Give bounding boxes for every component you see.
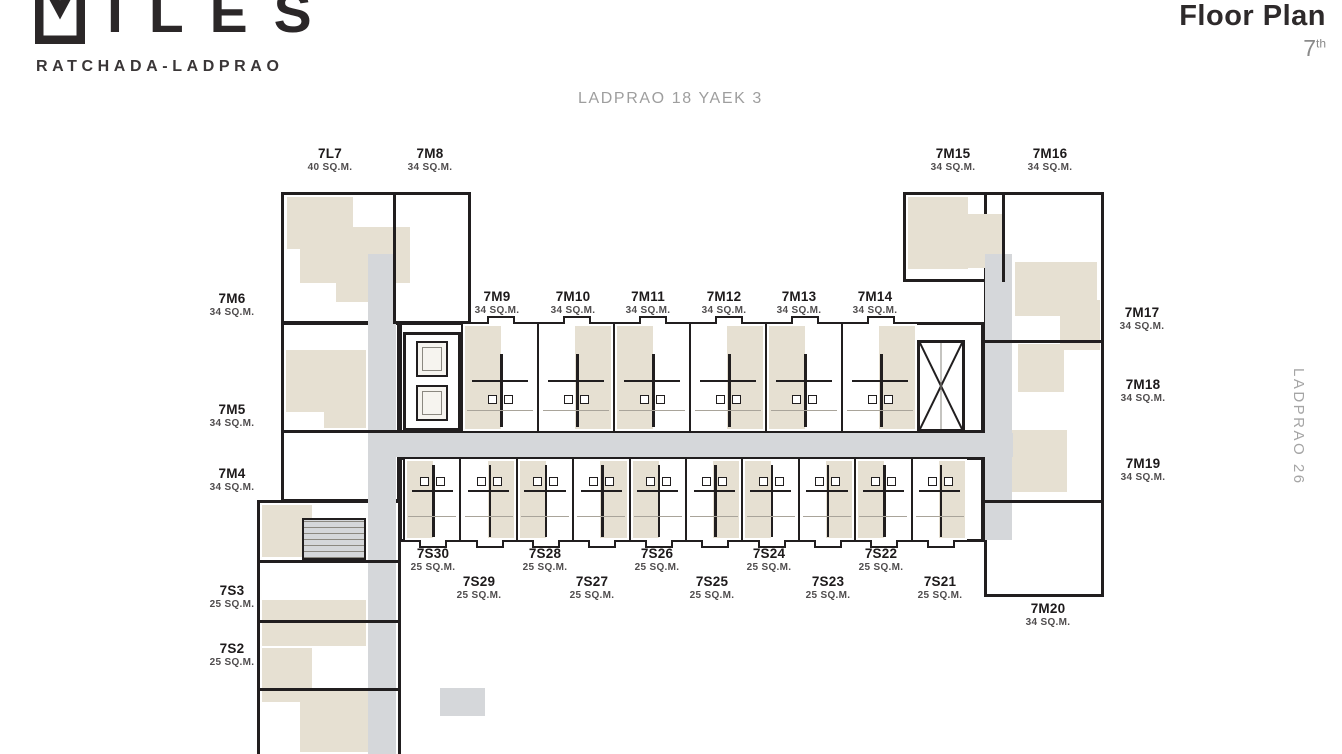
wall bbox=[776, 380, 832, 382]
elevator-icon bbox=[416, 341, 448, 377]
floor-plan-page: ILES RATCHADA-LADPRAO Floor Plan 7th LAD… bbox=[0, 0, 1342, 754]
room-block bbox=[1060, 300, 1100, 350]
wall bbox=[694, 490, 735, 492]
wall bbox=[624, 380, 680, 382]
unit-label-7M19: 7M1934 SQ.M. bbox=[1121, 456, 1166, 483]
brand-subtitle: RATCHADA-LADPRAO bbox=[36, 58, 284, 76]
unit-label-7M17: 7M1734 SQ.M. bbox=[1120, 305, 1165, 332]
wall bbox=[257, 560, 401, 563]
unit-label-7S23: 7S2325 SQ.M. bbox=[806, 574, 851, 601]
room-block bbox=[407, 461, 433, 538]
unit-size: 34 SQ.M. bbox=[408, 162, 453, 173]
unit-name: 7M14 bbox=[853, 289, 898, 305]
wall bbox=[883, 465, 886, 536]
wall bbox=[257, 620, 401, 623]
fixture-icon bbox=[420, 477, 429, 486]
unit-size: 25 SQ.M. bbox=[523, 562, 568, 573]
detail-line bbox=[771, 410, 836, 411]
wall bbox=[852, 380, 908, 382]
unit-name: 7L7 bbox=[308, 146, 353, 162]
wall bbox=[393, 192, 396, 324]
corridor-left-vertical bbox=[368, 254, 396, 754]
room-block bbox=[520, 461, 546, 538]
detail-line bbox=[747, 516, 795, 517]
detail-line bbox=[803, 516, 851, 517]
wall bbox=[714, 465, 717, 536]
wall bbox=[637, 490, 678, 492]
fixture-icon bbox=[702, 477, 711, 486]
wall bbox=[804, 354, 807, 427]
fixture-icon bbox=[887, 477, 896, 486]
unit-label-7M10: 7M1034 SQ.M. bbox=[551, 289, 596, 316]
room-block bbox=[727, 326, 763, 429]
wall bbox=[489, 465, 492, 536]
unit-label-7M6: 7M634 SQ.M. bbox=[210, 291, 255, 318]
detail-line bbox=[465, 516, 513, 517]
unit-size: 34 SQ.M. bbox=[702, 305, 747, 316]
unit-cell bbox=[798, 459, 854, 540]
fixture-icon bbox=[656, 395, 665, 404]
fixture-icon bbox=[646, 477, 655, 486]
unit-label-7S29: 7S2925 SQ.M. bbox=[457, 574, 502, 601]
detail-line bbox=[619, 410, 684, 411]
unit-name: 7S21 bbox=[918, 574, 963, 590]
wall bbox=[601, 465, 604, 536]
unit-size: 25 SQ.M. bbox=[806, 590, 851, 601]
wall bbox=[880, 354, 883, 427]
unit-cell bbox=[516, 459, 572, 540]
fixture-icon bbox=[436, 477, 445, 486]
room-block bbox=[826, 461, 852, 538]
balcony-ledge bbox=[639, 316, 667, 324]
room-block bbox=[939, 461, 965, 538]
unit-size: 25 SQ.M. bbox=[918, 590, 963, 601]
title-block: Floor Plan 7th bbox=[1179, 0, 1326, 62]
unit-cell bbox=[685, 459, 741, 540]
detail-line bbox=[695, 410, 760, 411]
stairs-icon bbox=[920, 343, 962, 429]
wall bbox=[750, 490, 791, 492]
unit-name: 7M11 bbox=[626, 289, 671, 305]
detail-line bbox=[634, 516, 682, 517]
unit-label-7M5: 7M534 SQ.M. bbox=[210, 402, 255, 429]
unit-size: 25 SQ.M. bbox=[859, 562, 904, 573]
unit-size: 25 SQ.M. bbox=[411, 562, 456, 573]
unit-size: 25 SQ.M. bbox=[635, 562, 680, 573]
unit-label-7M12: 7M1234 SQ.M. bbox=[702, 289, 747, 316]
unit-name: 7M17 bbox=[1120, 305, 1165, 321]
floor-indicator: 7th bbox=[1179, 35, 1326, 62]
unit-size: 25 SQ.M. bbox=[210, 657, 255, 668]
unit-cell bbox=[854, 459, 910, 540]
wall bbox=[863, 490, 904, 492]
unit-label-7S22: 7S2225 SQ.M. bbox=[859, 546, 904, 573]
room-block bbox=[633, 461, 659, 538]
unit-cell bbox=[613, 324, 689, 431]
room-block bbox=[465, 326, 501, 429]
wall bbox=[728, 354, 731, 427]
fixture-icon bbox=[716, 395, 725, 404]
unit-size: 34 SQ.M. bbox=[551, 305, 596, 316]
unit-size: 34 SQ.M. bbox=[626, 305, 671, 316]
wall bbox=[771, 465, 774, 536]
unit-label-7M16: 7M1634 SQ.M. bbox=[1028, 146, 1073, 173]
wall bbox=[412, 490, 453, 492]
fixture-icon bbox=[477, 477, 486, 486]
unit-label-7M13: 7M1334 SQ.M. bbox=[777, 289, 822, 316]
unit-cell bbox=[629, 459, 685, 540]
unit-label-7S24: 7S2425 SQ.M. bbox=[747, 546, 792, 573]
unit-name: 7S29 bbox=[457, 574, 502, 590]
unit-size: 25 SQ.M. bbox=[457, 590, 502, 601]
unit-size: 25 SQ.M. bbox=[570, 590, 615, 601]
unit-label-7M8: 7M834 SQ.M. bbox=[408, 146, 453, 173]
unit-size: 34 SQ.M. bbox=[931, 162, 976, 173]
wall bbox=[468, 490, 509, 492]
unit-size: 25 SQ.M. bbox=[690, 590, 735, 601]
balcony-ledge bbox=[563, 316, 591, 324]
balcony-ledge bbox=[701, 540, 729, 548]
floor-suffix: th bbox=[1316, 36, 1326, 50]
wall bbox=[1002, 192, 1005, 282]
miles-m-mark-icon bbox=[35, 0, 85, 44]
unit-size: 34 SQ.M. bbox=[1120, 321, 1165, 332]
room-block bbox=[300, 690, 370, 752]
unit-cell bbox=[572, 459, 628, 540]
wall bbox=[806, 490, 847, 492]
wall bbox=[548, 380, 604, 382]
balcony-ledge bbox=[476, 540, 504, 548]
detail-line bbox=[577, 516, 625, 517]
fixture-icon bbox=[944, 477, 953, 486]
unit-name: 7M19 bbox=[1121, 456, 1166, 472]
room-block bbox=[488, 461, 514, 538]
elevator-core bbox=[403, 332, 461, 431]
fixture-icon bbox=[504, 395, 513, 404]
unit-label-7S21: 7S2125 SQ.M. bbox=[918, 574, 963, 601]
room-block bbox=[617, 326, 653, 429]
wall bbox=[545, 465, 548, 536]
detail-line bbox=[847, 410, 912, 411]
detail-line bbox=[467, 410, 532, 411]
unit-name: 7M4 bbox=[210, 466, 255, 482]
detail-line bbox=[916, 516, 964, 517]
room-block bbox=[879, 326, 915, 429]
unit-label-7S26: 7S2625 SQ.M. bbox=[635, 546, 680, 573]
room-block bbox=[1018, 344, 1064, 392]
unit-name: 7S2 bbox=[210, 641, 255, 657]
fixture-icon bbox=[488, 395, 497, 404]
detail-line bbox=[543, 410, 608, 411]
unit-name: 7S25 bbox=[690, 574, 735, 590]
balcony-ledge bbox=[814, 540, 842, 548]
unit-label-7S27: 7S2725 SQ.M. bbox=[570, 574, 615, 601]
unit-name: 7M10 bbox=[551, 289, 596, 305]
fixture-icon bbox=[718, 477, 727, 486]
fixture-icon bbox=[928, 477, 937, 486]
unit-size: 34 SQ.M. bbox=[1026, 617, 1071, 628]
balcony-ledge bbox=[487, 316, 515, 324]
unit-size: 34 SQ.M. bbox=[777, 305, 822, 316]
fixture-icon bbox=[871, 477, 880, 486]
stair-bottom-left bbox=[302, 518, 366, 560]
room-block bbox=[745, 461, 771, 538]
room-block bbox=[769, 326, 805, 429]
wall bbox=[919, 490, 960, 492]
unit-name: 7M5 bbox=[210, 402, 255, 418]
unit-name: 7M6 bbox=[210, 291, 255, 307]
room-block bbox=[262, 600, 366, 646]
unit-size: 34 SQ.M. bbox=[853, 305, 898, 316]
wall bbox=[827, 465, 830, 536]
unit-cell bbox=[689, 324, 765, 431]
brand-logo: ILES bbox=[35, 0, 338, 44]
street-label-right: LADPRAO 26 bbox=[1290, 368, 1307, 486]
wall bbox=[652, 354, 655, 427]
unit-name: 7S22 bbox=[859, 546, 904, 562]
unit-cell bbox=[537, 324, 613, 431]
room-block bbox=[600, 461, 626, 538]
room-block bbox=[324, 350, 366, 428]
unit-cell bbox=[765, 324, 841, 431]
unit-name: 7S26 bbox=[635, 546, 680, 562]
detail-line bbox=[859, 516, 907, 517]
unit-label-7M9: 7M934 SQ.M. bbox=[475, 289, 520, 316]
room-block bbox=[286, 350, 324, 412]
unit-label-7L7: 7L740 SQ.M. bbox=[308, 146, 353, 173]
fixture-icon bbox=[792, 395, 801, 404]
fixture-icon bbox=[868, 395, 877, 404]
unit-size: 34 SQ.M. bbox=[210, 307, 255, 318]
street-label-top: LADPRAO 18 YAEK 3 bbox=[578, 90, 763, 108]
wall bbox=[524, 490, 565, 492]
fixture-icon bbox=[815, 477, 824, 486]
unit-size: 25 SQ.M. bbox=[210, 599, 255, 610]
wall bbox=[432, 465, 435, 536]
unit-label-7M14: 7M1434 SQ.M. bbox=[853, 289, 898, 316]
unit-size: 34 SQ.M. bbox=[475, 305, 520, 316]
page-title: Floor Plan bbox=[1179, 0, 1326, 33]
unit-label-7S30: 7S3025 SQ.M. bbox=[411, 546, 456, 573]
unit-name: 7M9 bbox=[475, 289, 520, 305]
unit-cell bbox=[911, 459, 967, 540]
unit-label-7S3: 7S325 SQ.M. bbox=[210, 583, 255, 610]
fixture-icon bbox=[564, 395, 573, 404]
unit-name: 7M13 bbox=[777, 289, 822, 305]
unit-size: 34 SQ.M. bbox=[210, 418, 255, 429]
corridor-right-vertical bbox=[985, 254, 1012, 540]
unit-cell bbox=[459, 459, 515, 540]
unit-size: 25 SQ.M. bbox=[747, 562, 792, 573]
fixture-icon bbox=[884, 395, 893, 404]
fixture-icon bbox=[640, 395, 649, 404]
unit-label-7M4: 7M434 SQ.M. bbox=[210, 466, 255, 493]
unit-name: 7M12 bbox=[702, 289, 747, 305]
unit-name: 7S27 bbox=[570, 574, 615, 590]
detail-line bbox=[408, 516, 456, 517]
fixture-icon bbox=[493, 477, 502, 486]
balcony-ledge bbox=[927, 540, 955, 548]
floor-number: 7 bbox=[1303, 35, 1316, 61]
fixture-icon bbox=[732, 395, 741, 404]
wall bbox=[700, 380, 756, 382]
unit-name: 7S30 bbox=[411, 546, 456, 562]
unit-label-7S25: 7S2525 SQ.M. bbox=[690, 574, 735, 601]
wall bbox=[472, 380, 528, 382]
fixture-icon bbox=[808, 395, 817, 404]
unit-label-7M11: 7M1134 SQ.M. bbox=[626, 289, 671, 316]
unit-label-7M18: 7M1834 SQ.M. bbox=[1121, 377, 1166, 404]
unit-size: 40 SQ.M. bbox=[308, 162, 353, 173]
balcony-ledge bbox=[867, 316, 895, 324]
corridor-stub-bottom-left bbox=[440, 688, 485, 716]
detail-line bbox=[690, 516, 738, 517]
corridor-middle-horizontal bbox=[396, 433, 1013, 457]
fixture-icon bbox=[759, 477, 768, 486]
detail-line bbox=[521, 516, 569, 517]
fixture-icon bbox=[533, 477, 542, 486]
room-block bbox=[858, 461, 884, 538]
wall bbox=[581, 490, 622, 492]
wall bbox=[257, 688, 401, 691]
wall bbox=[984, 500, 1104, 503]
unit-label-7S28: 7S2825 SQ.M. bbox=[523, 546, 568, 573]
brand-logo-text: ILES bbox=[107, 0, 338, 44]
balcony-ledge bbox=[791, 316, 819, 324]
unit-name: 7M16 bbox=[1028, 146, 1073, 162]
fixture-icon bbox=[580, 395, 589, 404]
fixture-icon bbox=[662, 477, 671, 486]
fixture-icon bbox=[549, 477, 558, 486]
wall bbox=[500, 354, 503, 427]
unit-cell bbox=[403, 459, 459, 540]
room-block bbox=[575, 326, 611, 429]
balcony-ledge bbox=[588, 540, 616, 548]
wall bbox=[576, 354, 579, 427]
room-block bbox=[713, 461, 739, 538]
unit-name: 7S3 bbox=[210, 583, 255, 599]
unit-name: 7M20 bbox=[1026, 601, 1071, 617]
stair-core bbox=[917, 340, 965, 432]
unit-cell bbox=[841, 324, 917, 431]
balcony-ledge bbox=[715, 316, 743, 324]
unit-name: 7S23 bbox=[806, 574, 851, 590]
fixture-icon bbox=[605, 477, 614, 486]
unit-name: 7S24 bbox=[747, 546, 792, 562]
elevator-icon bbox=[416, 385, 448, 421]
unit-name: 7M8 bbox=[408, 146, 453, 162]
fixture-icon bbox=[831, 477, 840, 486]
wall bbox=[658, 465, 661, 536]
unit-size: 34 SQ.M. bbox=[210, 482, 255, 493]
fixture-icon bbox=[775, 477, 784, 486]
fixture-icon bbox=[589, 477, 598, 486]
unit-label-7M20: 7M2034 SQ.M. bbox=[1026, 601, 1071, 628]
wall bbox=[984, 340, 1104, 343]
unit-cell bbox=[741, 459, 797, 540]
unit-name: 7M18 bbox=[1121, 377, 1166, 393]
unit-label-7M15: 7M1534 SQ.M. bbox=[931, 146, 976, 173]
unit-label-7S2: 7S225 SQ.M. bbox=[210, 641, 255, 668]
room-block bbox=[908, 197, 968, 269]
unit-size: 34 SQ.M. bbox=[1121, 393, 1166, 404]
wall bbox=[940, 465, 943, 536]
unit-name: 7S28 bbox=[523, 546, 568, 562]
unit-name: 7M15 bbox=[931, 146, 976, 162]
unit-size: 34 SQ.M. bbox=[1121, 472, 1166, 483]
unit-size: 34 SQ.M. bbox=[1028, 162, 1073, 173]
wall bbox=[281, 430, 400, 433]
unit-cell bbox=[461, 324, 537, 431]
